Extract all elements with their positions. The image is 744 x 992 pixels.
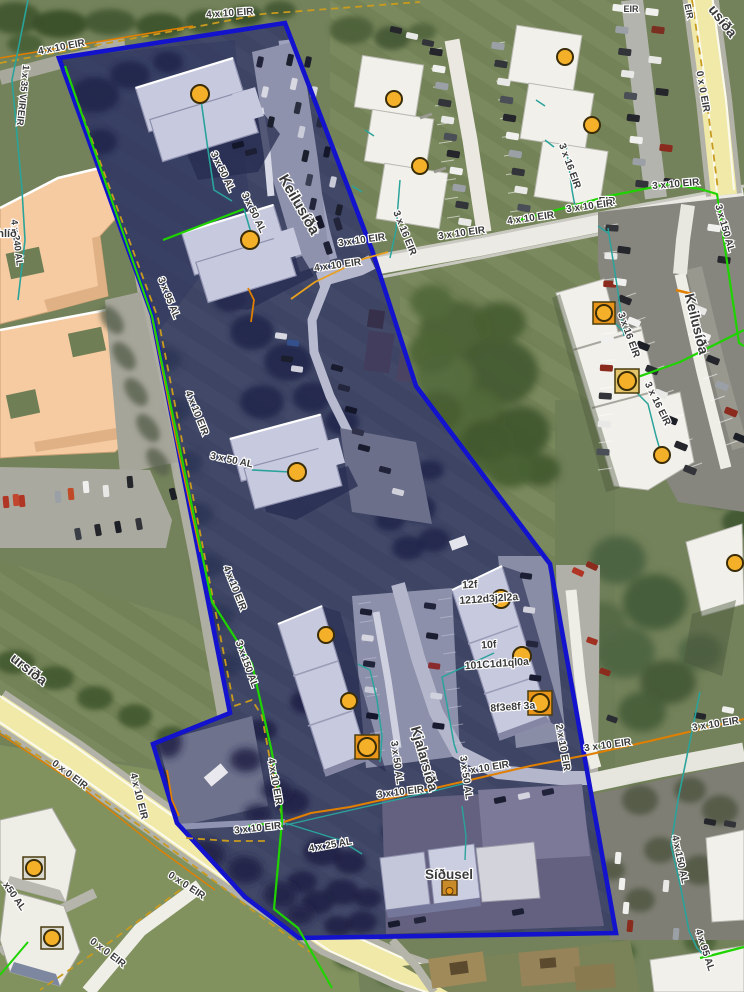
- svg-text:hlíð: hlíð: [0, 228, 17, 240]
- svg-text:12f: 12f: [462, 578, 478, 591]
- svg-text:10f: 10f: [481, 638, 497, 651]
- svg-text:Síðusel: Síðusel: [425, 867, 473, 882]
- svg-text:EIR: EIR: [623, 4, 639, 14]
